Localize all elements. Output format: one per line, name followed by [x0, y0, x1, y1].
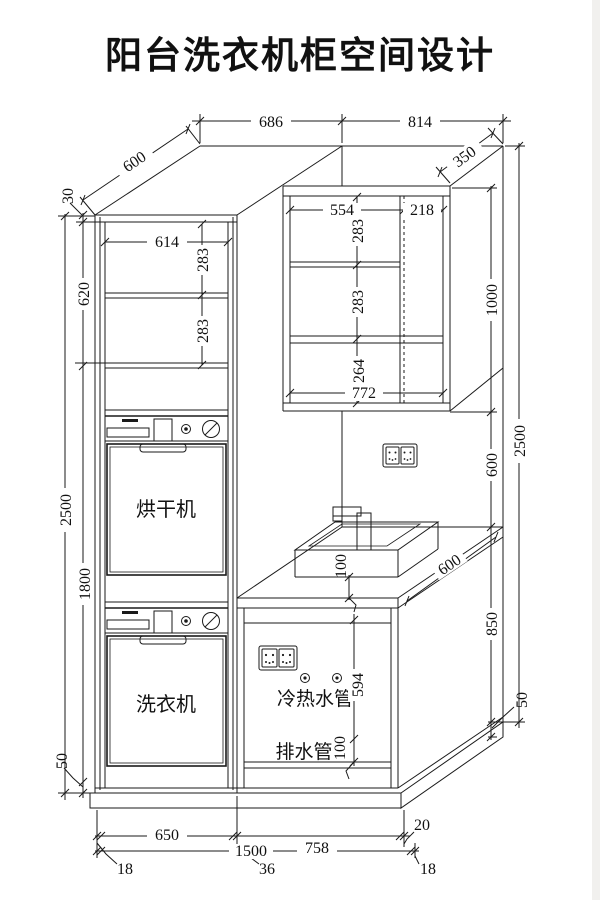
dim-right-2500: 2500 [512, 425, 529, 457]
dim-top-814: 814 [408, 114, 432, 131]
washer-display [107, 620, 149, 629]
dim-right-600: 600 [484, 453, 501, 477]
dim-bottom-36: 36 [259, 861, 275, 878]
technical-drawing: 阳台洗衣机柜空间设计 [0, 0, 600, 900]
water-pipes-label: 冷热水管 [277, 688, 353, 710]
washer-door-handle [140, 636, 186, 644]
washer-brand-mark [122, 611, 138, 614]
dim-left-1800: 1800 [77, 568, 94, 600]
faucet [333, 507, 371, 550]
dryer-brand-mark [122, 419, 138, 422]
washer-keypad [154, 611, 172, 633]
page-title: 阳台洗衣机柜空间设计 [105, 35, 495, 76]
dim-bottom-18-left: 18 [117, 861, 133, 878]
cabinet-outlet-lower [259, 646, 297, 670]
dim-wallcab-218: 218 [410, 202, 434, 219]
dim-wallcab-772: 772 [352, 385, 376, 402]
dim-bottom-20: 20 [414, 817, 430, 834]
dim-right-850: 850 [484, 612, 501, 636]
plinth [90, 722, 503, 808]
dim-drain-100: 100 [332, 736, 349, 760]
wall-outlet-upper [383, 444, 417, 467]
dryer-unit: 烘干机 [105, 410, 228, 575]
dim-tall-shelf2-283: 283 [195, 319, 212, 343]
dim-left-50: 50 [54, 753, 71, 769]
counter [237, 527, 503, 608]
dryer-display [107, 428, 149, 437]
dim-left-2500: 2500 [58, 494, 75, 526]
dim-left-620: 620 [76, 282, 93, 306]
paper-edge [592, 0, 600, 900]
water-pipe-ports [301, 674, 342, 683]
dim-top-686: 686 [259, 114, 283, 131]
dim-bottom-758: 758 [305, 840, 329, 857]
washer-label: 洗衣机 [136, 693, 196, 716]
dim-tall-shelf1-283: 283 [195, 248, 212, 272]
dimension-leaders [64, 203, 514, 864]
dim-left-30: 30 [60, 188, 77, 204]
dim-pipes-594: 594 [350, 673, 367, 697]
dryer-label: 烘干机 [136, 498, 196, 521]
wall-cabinet [283, 146, 503, 411]
dim-right-50: 50 [514, 692, 531, 708]
drain-pipe-label: 排水管 [275, 741, 332, 763]
dim-bottom-18-right: 18 [420, 861, 436, 878]
dim-wallcab-shelf2-283: 283 [350, 290, 367, 314]
dim-wallcab-shelf1-283: 283 [350, 219, 367, 243]
dim-wallcab-1000: 1000 [484, 284, 501, 316]
dryer-keypad [154, 419, 172, 441]
washer-unit: 洗衣机 [105, 602, 228, 766]
drawing-page: 阳台洗衣机柜空间设计 [0, 0, 600, 900]
dim-tall-614: 614 [155, 234, 179, 251]
dim-bottom-650: 650 [155, 827, 179, 844]
dryer-door-handle [140, 444, 186, 452]
dim-wallcab-264: 264 [351, 359, 368, 383]
dim-bottom-1500: 1500 [235, 843, 267, 860]
dim-sink-100: 100 [333, 554, 350, 578]
